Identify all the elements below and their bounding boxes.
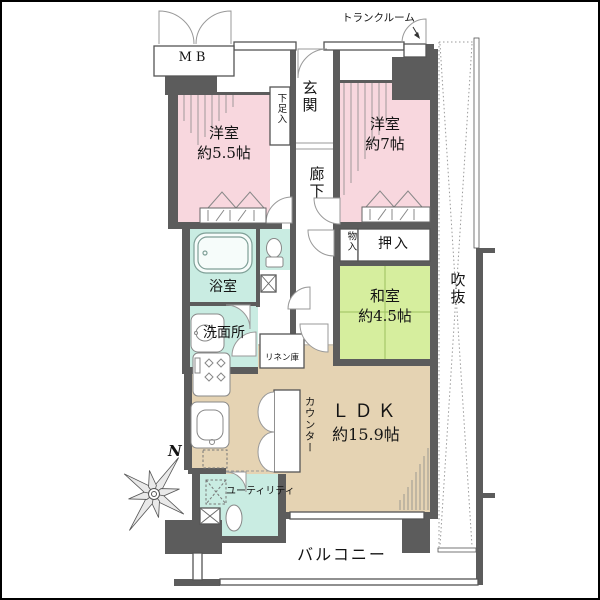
washroom-label: 洗面所 <box>190 324 258 342</box>
western-room-1-label: 洋室 約5.5帖 <box>178 123 270 164</box>
utility-sink-icon <box>226 505 242 531</box>
mb-label: MB <box>154 50 234 67</box>
void-label: 吹抜 <box>447 272 467 306</box>
floor-plan: MB トランクルーム 玄関 下足入 洋室 約5.5帖 洋室 約7帖 廊下 浴室 … <box>0 0 600 600</box>
compass-north-label: N <box>168 442 182 462</box>
entrance-label: 玄関 <box>299 80 319 114</box>
closet-label: 押入 <box>358 235 430 253</box>
ldk-label: ＬＤＫ 約15.9帖 <box>302 400 430 446</box>
linen-label: リネン庫 <box>260 353 304 364</box>
counter-box <box>274 390 300 472</box>
utility-label: ユーティリティ <box>226 485 280 498</box>
western2-door-icon <box>314 198 340 224</box>
bathtub-icon <box>194 233 252 273</box>
shoe-box-label: 下足入 <box>274 93 286 125</box>
trunk-room-arrow <box>413 27 420 39</box>
storage-door-icon <box>308 230 334 256</box>
western-room-2-label: 洋室 約7帖 <box>340 114 430 155</box>
mb-door-icon <box>196 11 231 44</box>
stove-icon <box>193 353 230 396</box>
kitchen-sink-icon <box>191 402 229 448</box>
toilet-icon <box>266 239 283 268</box>
bathroom-label: 浴室 <box>190 278 256 296</box>
storage-label: 物入 <box>344 231 356 252</box>
mb-door-icon <box>159 11 194 44</box>
japanese-room-label: 和室 約4.5帖 <box>340 286 430 327</box>
entrance-door-icon <box>298 49 327 78</box>
corridor-label: 廊下 <box>306 166 326 200</box>
balcony-window <box>290 512 424 519</box>
balcony-label: バルコニー <box>272 545 412 566</box>
balcony-railing <box>220 579 478 585</box>
trunk-room-label: トランクルーム <box>342 12 415 26</box>
